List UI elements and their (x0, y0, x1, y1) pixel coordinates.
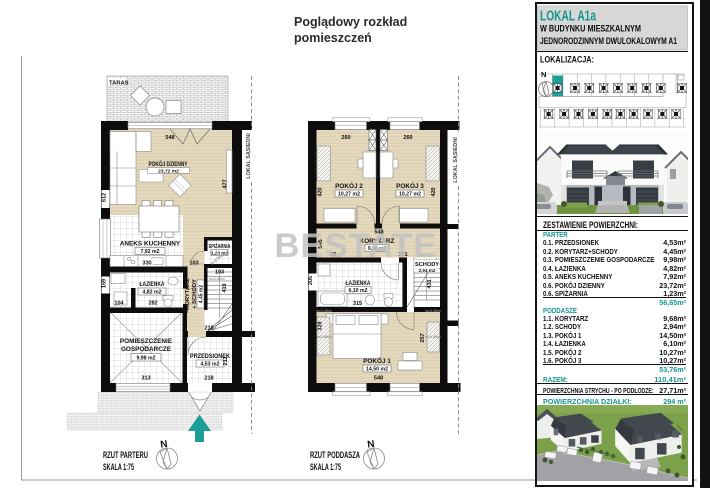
svg-text:14,50 m2: 14,50 m2 (366, 367, 388, 373)
svg-text:103: 103 (215, 270, 224, 276)
svg-text:LOKAL SĄSIEDNI: LOKAL SĄSIEDNI (453, 137, 459, 183)
svg-text:SPIŻARNIA: SPIŻARNIA (209, 243, 231, 250)
svg-text:548: 548 (374, 376, 383, 382)
svg-text:N: N (541, 70, 546, 79)
svg-text:282: 282 (148, 301, 157, 307)
svg-text:BESTATE: BESTATE (275, 227, 438, 265)
svg-text:9,98 m2: 9,98 m2 (136, 355, 155, 361)
svg-text:LOKAL A1a: LOKAL A1a (540, 9, 597, 25)
svg-text:JEDNORODZINNYM DWULOKALOWYM A1: JEDNORODZINNYM DWULOKALOWYM A1 (540, 36, 677, 46)
svg-text:4,82 m2: 4,82 m2 (142, 290, 161, 296)
svg-text:POMIESZCZENIE: POMIESZCZENIE (120, 338, 173, 345)
svg-text:b=1.40m: b=1.40m (316, 335, 332, 339)
svg-text:KORYTARZ: KORYTARZ (185, 278, 191, 310)
svg-text:612: 612 (102, 193, 108, 202)
svg-text:RZUT PARTERU: RZUT PARTERU (103, 450, 148, 460)
svg-text:RZUT PODDASZA: RZUT PODDASZA (310, 450, 360, 460)
svg-text:POKÓJ 1: POKÓJ 1 (363, 356, 391, 365)
svg-text:LOKALIZACJA:: LOKALIZACJA: (540, 55, 594, 65)
svg-text:218: 218 (204, 326, 213, 332)
svg-text:b=1.20m: b=1.20m (425, 309, 441, 313)
svg-text:420: 420 (431, 187, 437, 196)
svg-text:ŁAZIENKA: ŁAZIENKA (140, 281, 165, 288)
svg-text:260: 260 (403, 135, 412, 141)
svg-text:SKALA 1:75: SKALA 1:75 (310, 462, 341, 472)
svg-text:POKÓJ DZIENNY: POKÓJ DZIENNY (149, 160, 189, 168)
svg-text:548: 548 (165, 135, 174, 141)
svg-text:SKALA 1:75: SKALA 1:75 (103, 462, 134, 472)
svg-text:169: 169 (102, 279, 108, 288)
svg-text:23,72 m2: 23,72 m2 (158, 168, 179, 174)
svg-text:104: 104 (114, 301, 124, 307)
svg-text:419: 419 (222, 283, 228, 292)
svg-text:431: 431 (427, 279, 433, 288)
svg-text:313: 313 (141, 376, 150, 382)
svg-text:b=1.40m: b=1.40m (425, 335, 441, 339)
svg-text:420: 420 (318, 187, 324, 196)
svg-text:330: 330 (142, 261, 151, 267)
svg-text:103: 103 (189, 261, 198, 267)
svg-text:477: 477 (223, 179, 229, 188)
svg-text:b=1.20m: b=1.20m (316, 309, 332, 313)
svg-text:315: 315 (353, 301, 362, 307)
svg-text:212: 212 (223, 356, 229, 365)
svg-text:4,45 m2: 4,45 m2 (199, 285, 205, 304)
svg-text:W BUDYNKU MIESZKALNYM: W BUDYNKU MIESZKALNYM (540, 24, 641, 34)
svg-text:ŁAZIENKA: ŁAZIENKA (346, 280, 371, 287)
svg-text:b=1.40m: b=1.40m (209, 277, 225, 281)
svg-text:205: 205 (308, 276, 314, 285)
svg-text:7,92 m2: 7,92 m2 (140, 249, 159, 255)
svg-text:LOKAL SĄSIEDNI: LOKAL SĄSIEDNI (246, 133, 252, 179)
svg-text:10,27 m2: 10,27 m2 (338, 192, 360, 198)
svg-text:218: 218 (204, 376, 213, 382)
svg-text:6,10 m2: 6,10 m2 (348, 288, 367, 294)
svg-text:328: 328 (318, 321, 324, 330)
svg-text:260: 260 (341, 135, 350, 141)
svg-text:GOSPODARCZE: GOSPODARCZE (121, 346, 172, 353)
svg-text:ZESTAWIENIE POWIERZCHNI:: ZESTAWIENIE POWIERZCHNI: (543, 220, 638, 230)
svg-text:ANEKS KUCHENNY: ANEKS KUCHENNY (120, 241, 181, 248)
svg-text:4,53 m2: 4,53 m2 (200, 362, 219, 368)
svg-text:2,94 m2: 2,94 m2 (419, 268, 436, 273)
svg-text:10,27 m2: 10,27 m2 (399, 192, 421, 198)
svg-text:POKÓJ 3: POKÓJ 3 (396, 181, 424, 190)
svg-text:POKÓJ 2: POKÓJ 2 (335, 181, 363, 190)
svg-text:TARAS: TARAS (109, 81, 129, 87)
